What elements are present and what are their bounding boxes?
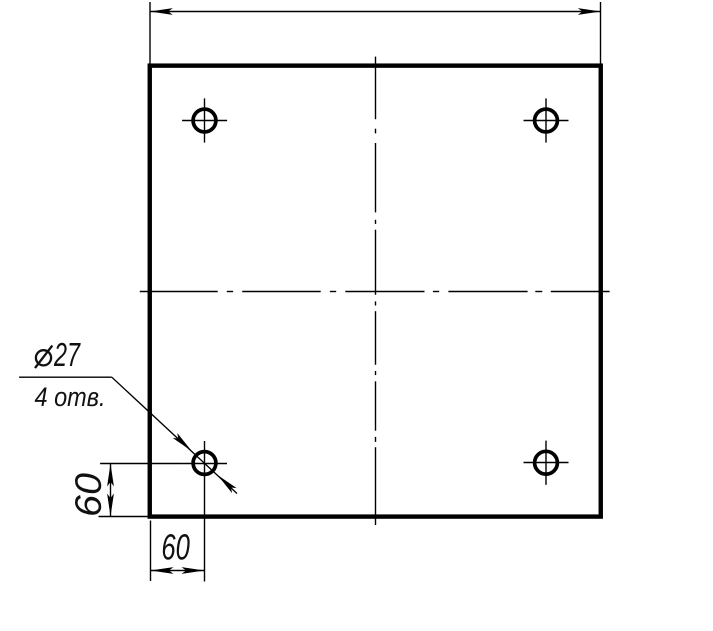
svg-text:60: 60 [67,473,109,517]
svg-text:27: 27 [53,337,81,374]
svg-text:60: 60 [161,527,190,568]
svg-text:4 отв.: 4 отв. [35,382,106,412]
